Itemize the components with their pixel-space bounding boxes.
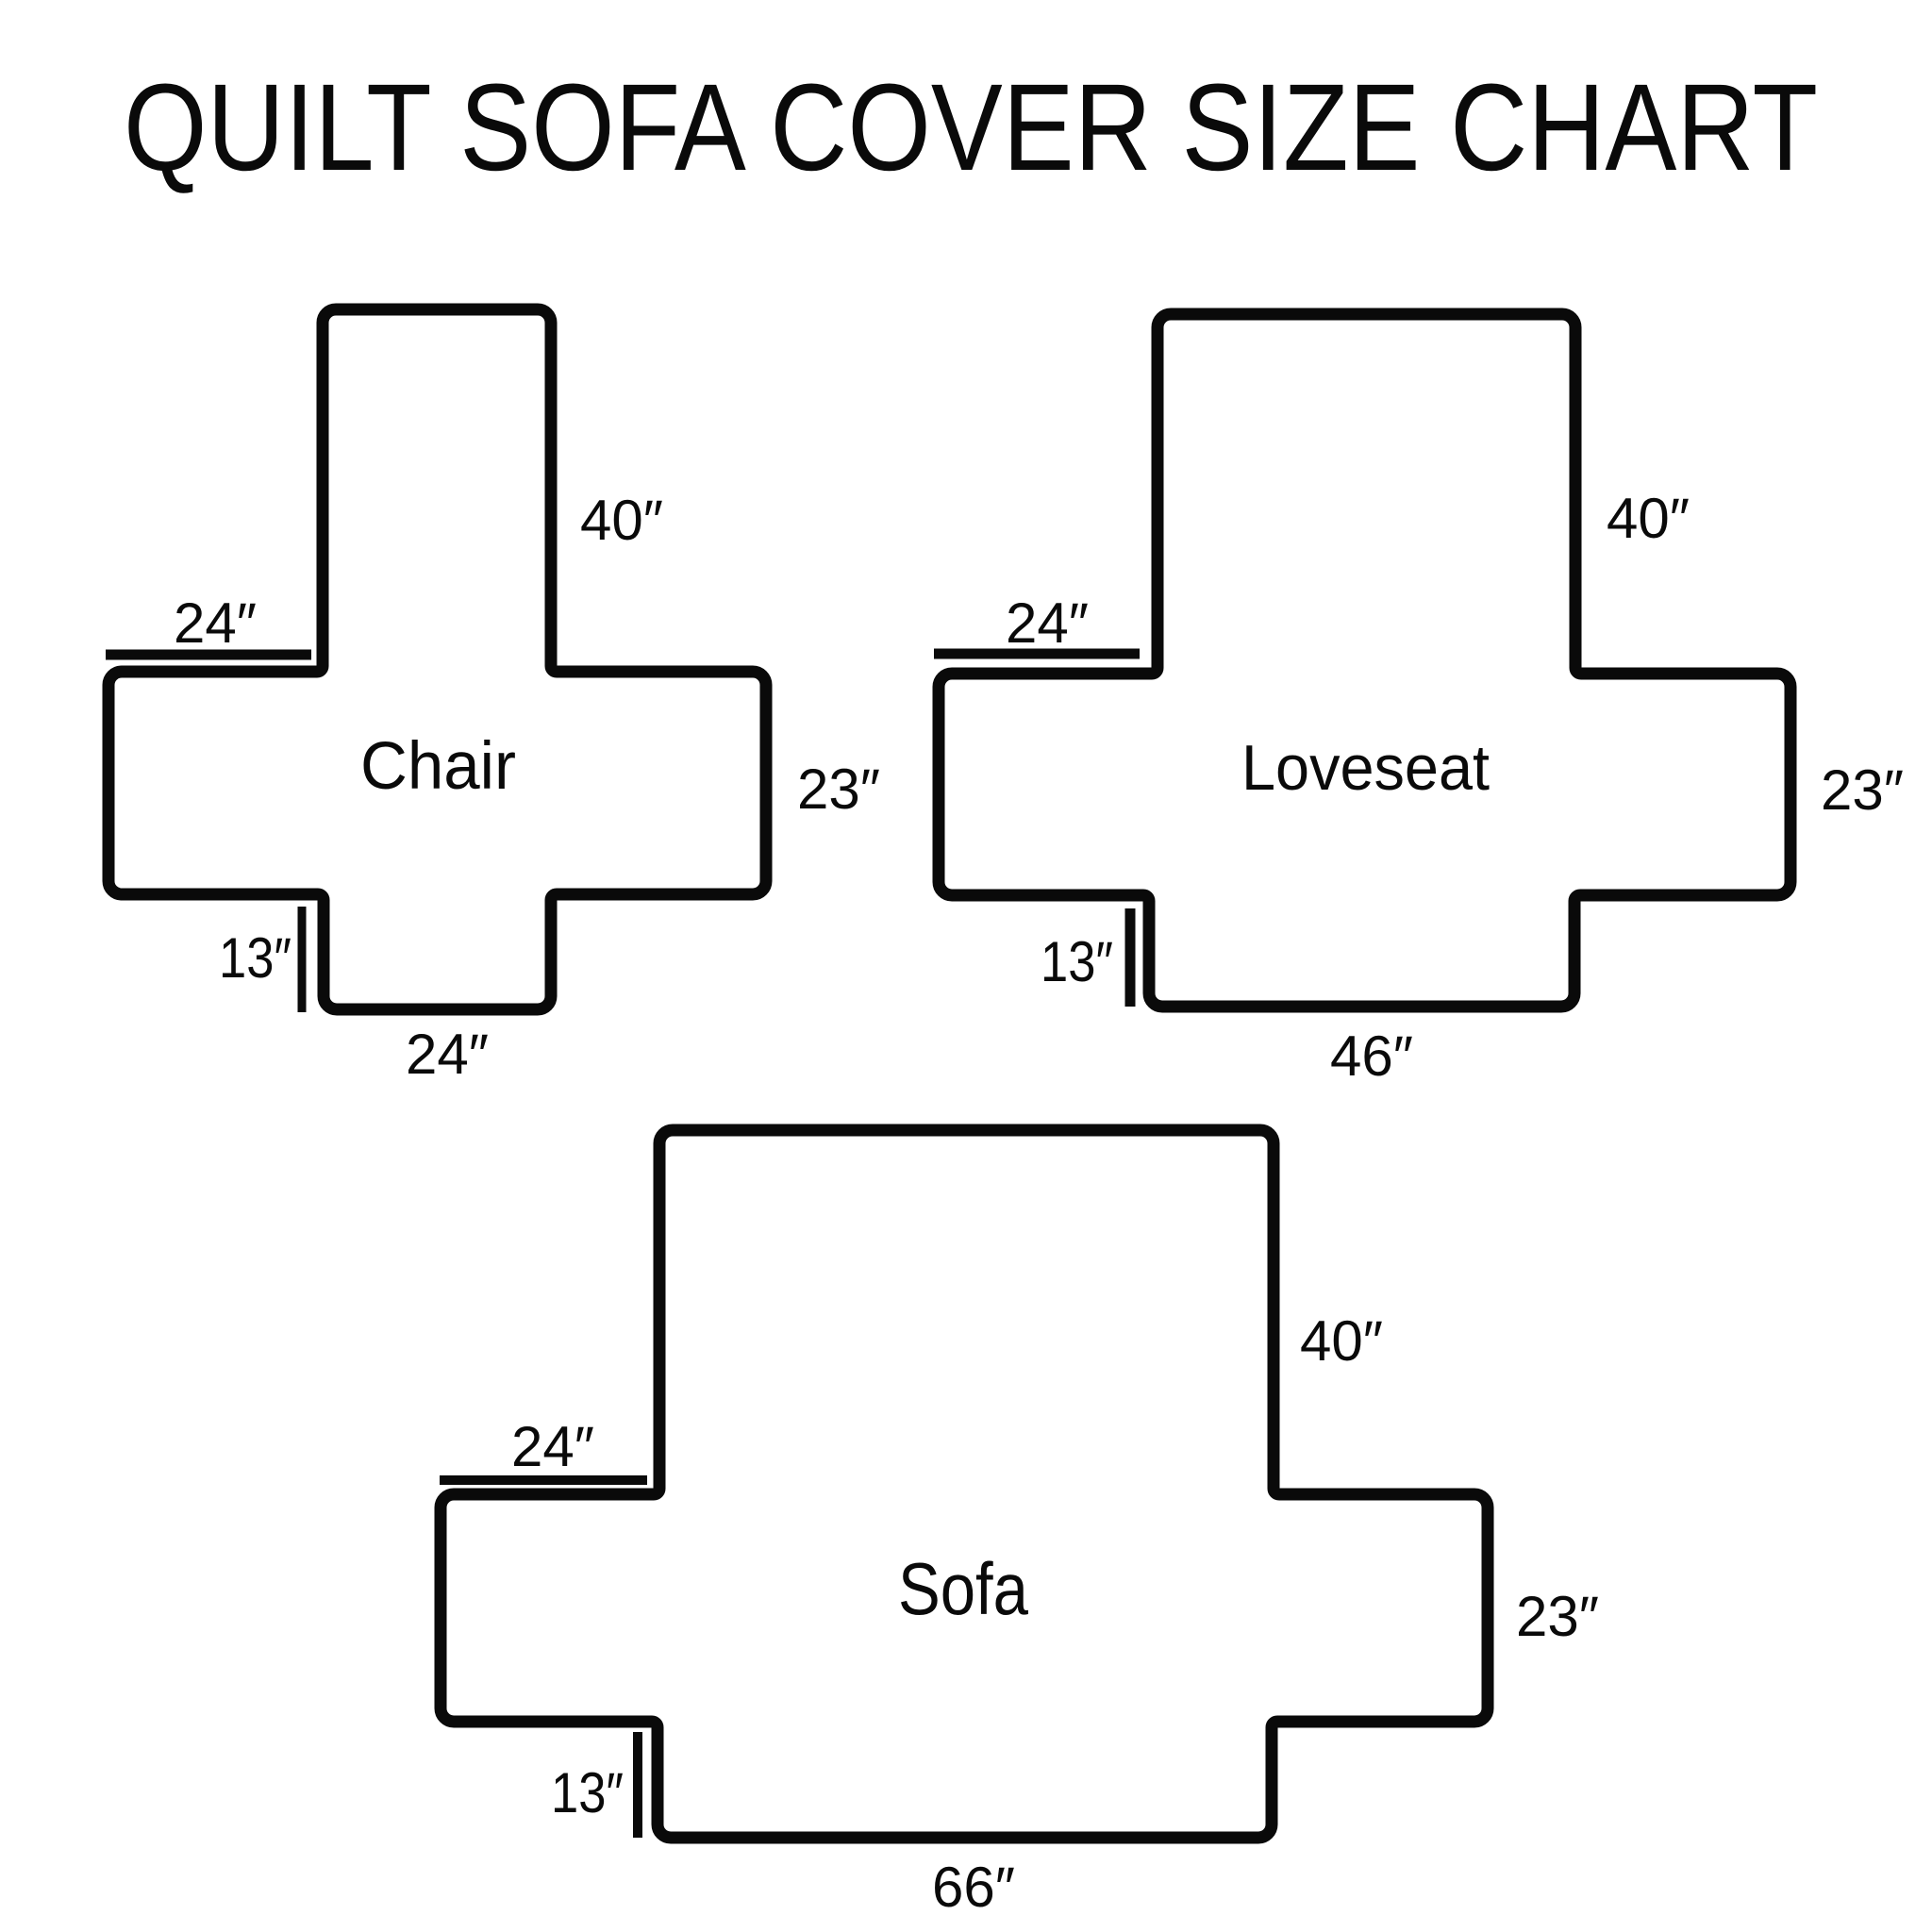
svg-text:23″: 23″ (1821, 758, 1904, 822)
svg-text:QUILT SOFA COVER SIZE CHART: QUILT SOFA COVER SIZE CHART (124, 58, 1818, 196)
svg-text:40″: 40″ (1607, 487, 1690, 550)
svg-text:40″: 40″ (1300, 1309, 1383, 1373)
svg-text:40″: 40″ (580, 489, 663, 552)
svg-text:23″: 23″ (1516, 1585, 1599, 1648)
svg-text:46″: 46″ (1330, 1024, 1413, 1088)
svg-text:24″: 24″ (174, 591, 257, 655)
svg-text:24″: 24″ (511, 1415, 594, 1478)
svg-text:Loveseat: Loveseat (1241, 732, 1490, 804)
svg-text:13″: 13″ (219, 926, 291, 990)
svg-text:24″: 24″ (406, 1023, 489, 1086)
svg-text:23″: 23″ (797, 758, 880, 821)
svg-text:66″: 66″ (932, 1856, 1015, 1919)
svg-text:24″: 24″ (1006, 591, 1089, 655)
svg-text:Chair: Chair (360, 729, 516, 804)
svg-text:13″: 13″ (551, 1761, 624, 1824)
svg-text:Sofa: Sofa (898, 1547, 1029, 1630)
svg-text:13″: 13″ (1041, 930, 1113, 993)
